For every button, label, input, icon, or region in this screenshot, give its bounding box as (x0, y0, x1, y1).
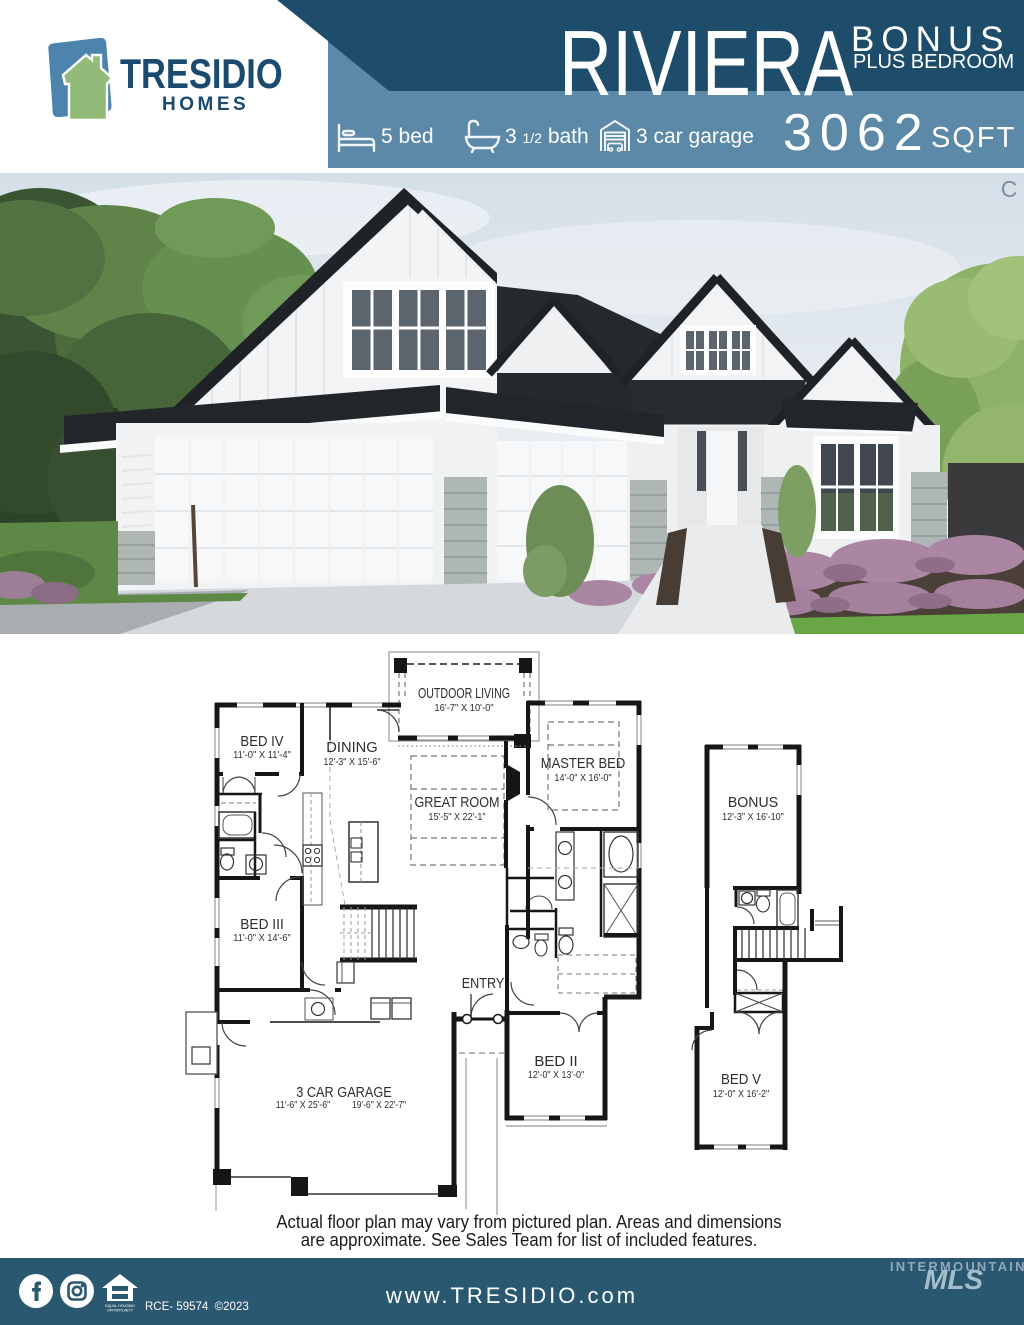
svg-text:12'-3" X 15'-6": 12'-3" X 15'-6" (323, 757, 380, 769)
svg-text:DINING: DINING (326, 740, 377, 756)
svg-text:MASTER BED: MASTER BED (541, 754, 625, 771)
svg-text:16'-7" X 10'-0": 16'-7" X 10'-0" (434, 703, 494, 714)
svg-text:14'-0" X 16'-0": 14'-0" X 16'-0" (554, 773, 611, 785)
svg-text:11'-6" X 25'-6": 11'-6" X 25'-6" (276, 1099, 330, 1110)
svg-text:12'-0" X 13'-0": 12'-0" X 13'-0" (528, 1070, 584, 1082)
svg-text:BED V: BED V (721, 1071, 762, 1088)
svg-text:BED III: BED III (240, 916, 284, 933)
svg-text:11'-0" X 11'-4": 11'-0" X 11'-4" (233, 750, 291, 761)
svg-text:BONUS: BONUS (728, 795, 779, 811)
svg-text:BED II: BED II (534, 1053, 577, 1070)
svg-text:C: C (1001, 176, 1018, 202)
svg-text:OUTDOOR LIVING: OUTDOOR LIVING (418, 684, 510, 701)
svg-text:15'-5" X 22'-1": 15'-5" X 22'-1" (428, 812, 485, 824)
svg-text:11'-0" X 14'-6": 11'-0" X 14'-6" (233, 933, 290, 944)
svg-text:OPPORTUNITY: OPPORTUNITY (107, 1309, 133, 1313)
svg-text:12'-0" X 16'-2": 12'-0" X 16'-2" (713, 1089, 769, 1101)
svg-text:BED IV: BED IV (240, 732, 284, 749)
svg-text:GREAT ROOM: GREAT ROOM (414, 793, 499, 810)
svg-text:19'-6" X 22'-7": 19'-6" X 22'-7" (352, 1099, 406, 1110)
svg-text:12'-3" X 16'-10": 12'-3" X 16'-10" (722, 812, 784, 824)
svg-text:3 CAR GARAGE: 3 CAR GARAGE (296, 1083, 392, 1100)
svg-text:ENTRY: ENTRY (462, 974, 505, 991)
